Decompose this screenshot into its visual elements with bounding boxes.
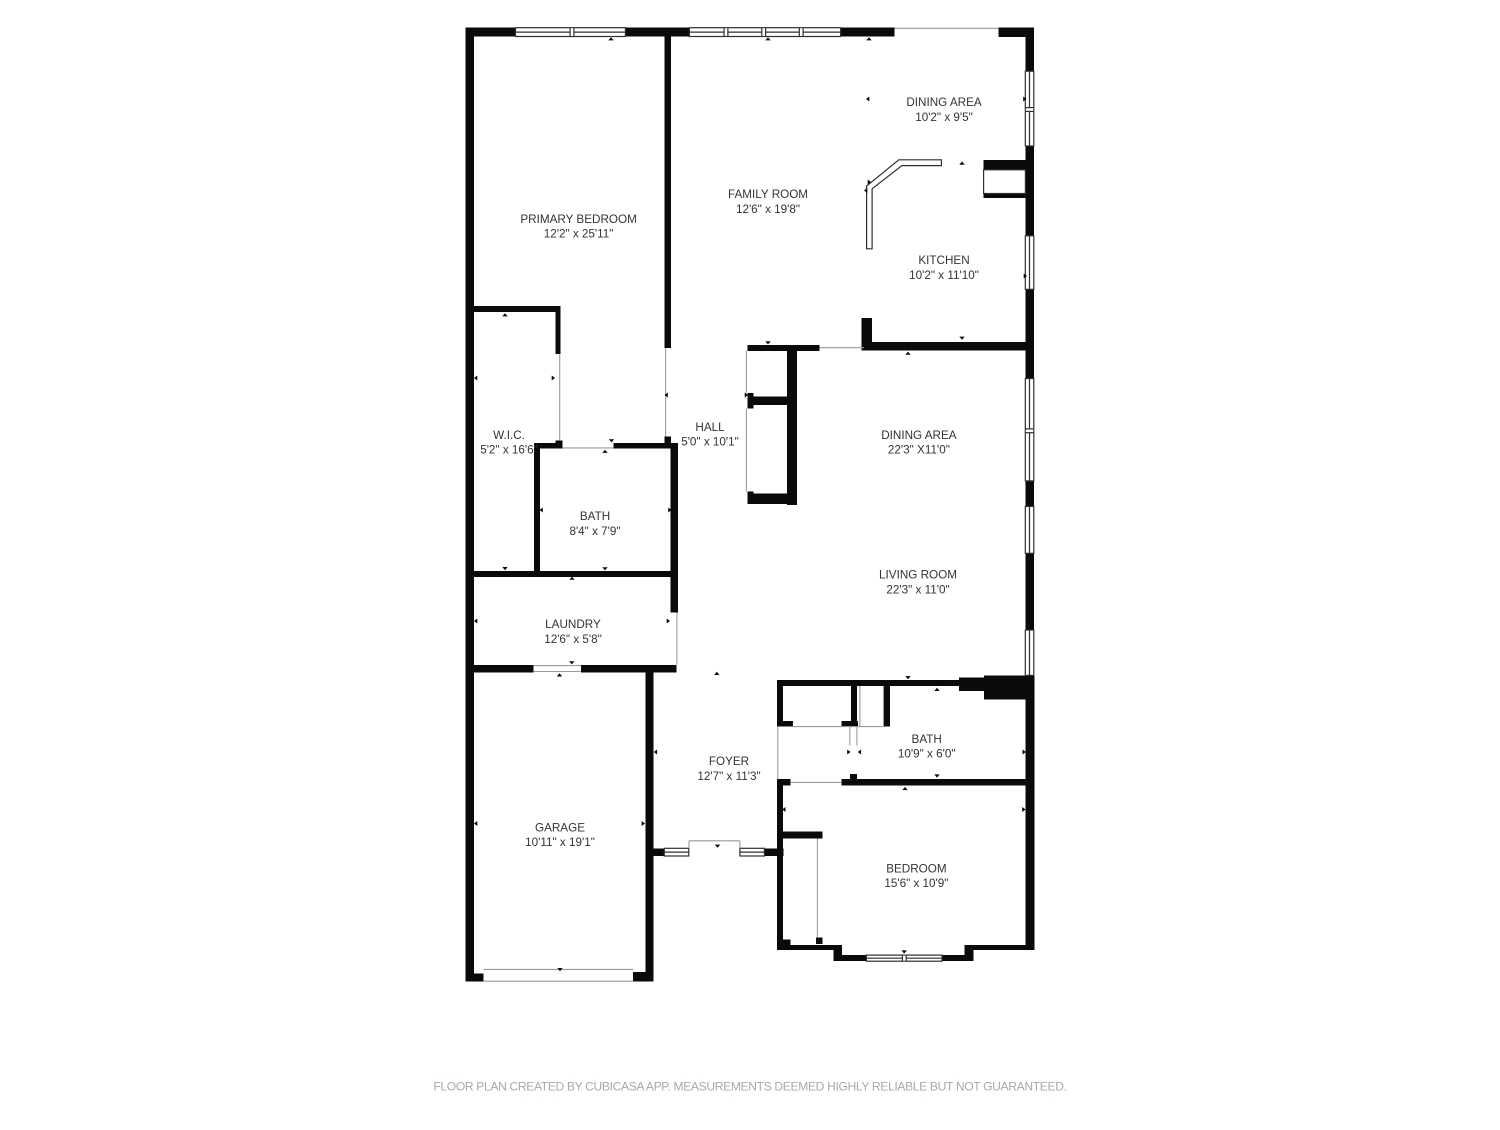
- svg-text:10'11" x 19'1": 10'11" x 19'1": [525, 836, 595, 849]
- svg-text:DINING AREA: DINING AREA: [881, 429, 957, 442]
- svg-text:BATH: BATH: [912, 733, 942, 746]
- svg-text:12'6" x 5'8": 12'6" x 5'8": [544, 633, 602, 646]
- svg-text:BEDROOM: BEDROOM: [886, 862, 946, 875]
- svg-text:10'2" x 9'5": 10'2" x 9'5": [915, 111, 973, 124]
- svg-text:5'2" x 16'6": 5'2" x 16'6": [480, 443, 538, 456]
- svg-text:PRIMARY BEDROOM: PRIMARY BEDROOM: [520, 213, 636, 226]
- svg-text:LAUNDRY: LAUNDRY: [545, 618, 601, 631]
- svg-text:8'4" x 7'9": 8'4" x 7'9": [569, 525, 620, 538]
- svg-text:LIVING ROOM: LIVING ROOM: [879, 569, 957, 582]
- svg-text:HALL: HALL: [695, 421, 725, 434]
- svg-text:12'7" x 11'3": 12'7" x 11'3": [697, 770, 760, 783]
- svg-text:12'2" x 25'11": 12'2" x 25'11": [544, 227, 614, 240]
- svg-text:5'0" x 10'1": 5'0" x 10'1": [681, 435, 739, 448]
- svg-text:22'3" x 11'0": 22'3" x 11'0": [886, 583, 949, 596]
- svg-text:FAMILY ROOM: FAMILY ROOM: [728, 188, 808, 201]
- svg-text:KITCHEN: KITCHEN: [918, 254, 969, 267]
- svg-text:BATH: BATH: [580, 510, 610, 523]
- svg-text:DINING AREA: DINING AREA: [906, 96, 982, 109]
- svg-text:GARAGE: GARAGE: [535, 822, 585, 835]
- svg-text:FOYER: FOYER: [709, 755, 749, 768]
- svg-text:15'6" x 10'9": 15'6" x 10'9": [884, 877, 948, 890]
- svg-text:10'2" x 11'10": 10'2" x 11'10": [909, 269, 979, 282]
- svg-text:10'9" x 6'0": 10'9" x 6'0": [898, 747, 956, 760]
- svg-text:12'6" x 19'8": 12'6" x 19'8": [736, 203, 800, 216]
- svg-text:W.I.C.: W.I.C.: [493, 429, 525, 442]
- svg-text:22'3" X11'0": 22'3" X11'0": [888, 444, 950, 457]
- svg-text:FLOOR PLAN CREATED BY CUBICASA: FLOOR PLAN CREATED BY CUBICASA APP. MEAS…: [433, 1080, 1066, 1094]
